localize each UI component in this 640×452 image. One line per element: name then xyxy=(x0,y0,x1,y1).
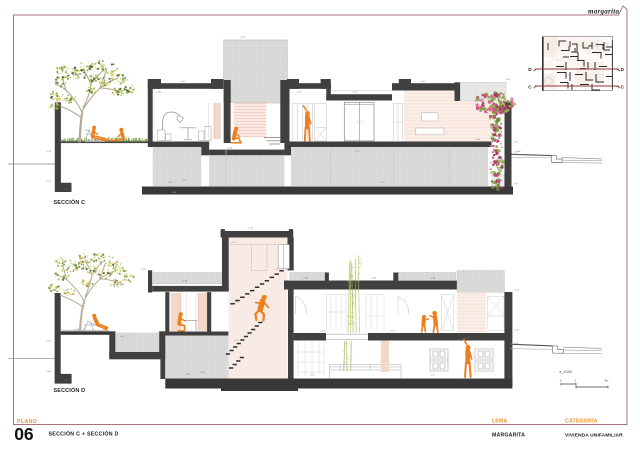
svg-text:+2.80: +2.80 xyxy=(156,92,162,94)
svg-text:0: 0 xyxy=(560,379,562,383)
svg-text:-1.20: -1.20 xyxy=(63,189,67,191)
svg-text:+0.45: +0.45 xyxy=(390,331,396,333)
svg-text:+2.40: +2.40 xyxy=(273,269,278,271)
svg-text:SECCIÓN C: SECCIÓN C xyxy=(54,198,86,206)
svg-text:06: 06 xyxy=(14,424,34,444)
svg-text:+4.05: +4.05 xyxy=(180,81,186,83)
svg-text:+2.45: +2.45 xyxy=(430,278,436,280)
svg-text:-3.20: -3.20 xyxy=(64,380,68,382)
svg-text:-0.08: -0.08 xyxy=(516,151,520,153)
svg-text:-1.51: -1.51 xyxy=(430,375,435,377)
svg-text:-1.65: -1.65 xyxy=(172,192,176,194)
svg-text:+2.80: +2.80 xyxy=(371,278,377,280)
svg-text:-0.08: -0.08 xyxy=(465,338,469,340)
svg-text:D: D xyxy=(528,67,532,73)
svg-text:+0.45: +0.45 xyxy=(320,331,326,333)
svg-text:D: D xyxy=(621,67,625,73)
svg-text:SECCIÓN C + SECCIÓN D: SECCIÓN C + SECCIÓN D xyxy=(49,429,119,437)
svg-text:+4.05: +4.05 xyxy=(141,269,147,271)
svg-text:+4.05: +4.05 xyxy=(420,81,426,83)
svg-text:+2.80: +2.80 xyxy=(303,278,309,280)
svg-text:e_1/100: e_1/100 xyxy=(560,370,572,374)
svg-text:-1.35: -1.35 xyxy=(310,375,315,377)
svg-text:CATEGORÍA: CATEGORÍA xyxy=(565,417,598,425)
svg-text:1: 1 xyxy=(575,379,577,383)
svg-text:C: C xyxy=(528,85,532,91)
svg-text:margarita: margarita xyxy=(588,8,620,16)
svg-text:3m: 3m xyxy=(605,379,610,383)
svg-text:+0.00: +0.00 xyxy=(475,139,481,141)
svg-text:VIVIENDA UNIFAMILIAR: VIVIENDA UNIFAMILIAR xyxy=(565,433,623,439)
svg-text:-1.51: -1.51 xyxy=(514,183,519,185)
svg-text:+5.30: +5.30 xyxy=(240,37,246,39)
svg-text:+4.05: +4.05 xyxy=(232,242,237,244)
svg-text:+2.80: +2.80 xyxy=(182,281,188,283)
svg-text:SECCIÓN D: SECCIÓN D xyxy=(54,386,86,394)
svg-text:LEMA: LEMA xyxy=(492,419,508,425)
svg-text:+1.40: +1.40 xyxy=(233,302,239,304)
svg-text:MARGARITA: MARGARITA xyxy=(492,432,525,438)
svg-text:+0.40: +0.40 xyxy=(227,147,233,149)
svg-text:+3.05: +3.05 xyxy=(505,79,511,81)
svg-text:+0.40: +0.40 xyxy=(514,330,520,332)
svg-text:-1.05: -1.05 xyxy=(47,181,53,183)
svg-text:+2.80: +2.80 xyxy=(296,92,302,94)
svg-text:+0.00: +0.00 xyxy=(513,142,519,144)
svg-text:+5.30: +5.30 xyxy=(248,228,254,230)
svg-text:-1.05: -1.05 xyxy=(47,151,53,153)
svg-text:+0.00: +0.00 xyxy=(74,329,80,331)
svg-text:-1.60: -1.60 xyxy=(46,341,52,343)
svg-text:+3.05: +3.05 xyxy=(352,92,358,94)
svg-text:+2.45: +2.45 xyxy=(514,290,520,292)
svg-text:C: C xyxy=(621,85,625,91)
svg-text:-1.60: -1.60 xyxy=(46,371,52,373)
